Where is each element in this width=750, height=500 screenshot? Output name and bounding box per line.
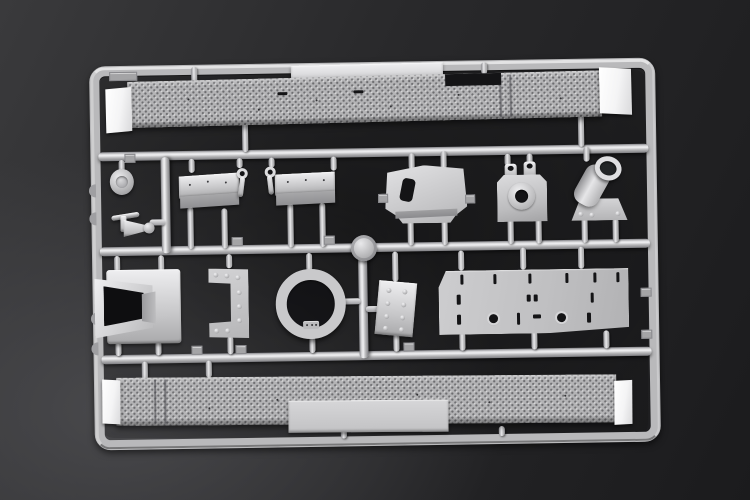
sprue-gate (155, 341, 161, 355)
gate-tab (324, 236, 335, 245)
plate-front-face (276, 191, 335, 206)
hole-dot (305, 179, 307, 181)
panel-slot (534, 294, 538, 301)
sprue-leg (221, 208, 228, 248)
hole-dot (564, 395, 566, 397)
coupling-knob (143, 222, 154, 233)
fitting-mark (277, 92, 287, 95)
sprue-gate (393, 334, 399, 352)
sprue-gate (578, 247, 584, 269)
panel-tick (460, 275, 463, 285)
panel-slot (517, 313, 520, 325)
shackle-hook-left (235, 168, 250, 200)
hole-dot (276, 399, 278, 401)
panel-seam (154, 380, 156, 424)
fitting-mark (353, 90, 363, 93)
top-strip-end-cap-left (105, 87, 132, 133)
hole-dot (287, 181, 289, 183)
bolt-head (615, 211, 620, 216)
post-bore (527, 164, 533, 169)
sprue-leg (187, 207, 194, 249)
rivet (224, 273, 229, 278)
plate-front-face (180, 193, 239, 209)
hole-dot (188, 98, 190, 100)
bottom-strip-end-cap-left (102, 380, 120, 425)
sprue-gate (227, 336, 233, 354)
top-fender-strip (105, 58, 628, 133)
panel-slot (587, 313, 591, 323)
bolt-head (578, 212, 583, 217)
gate-tab (403, 342, 414, 351)
model-kit-sprue-photo (0, 0, 750, 500)
hole-dot (207, 181, 209, 183)
post-bore (508, 166, 514, 171)
ring-lug (303, 321, 319, 329)
sprue-gate (309, 337, 315, 353)
gate-tab (124, 154, 135, 163)
bolt-plate (375, 280, 418, 337)
sprue-gate (330, 157, 336, 171)
frame-tab (641, 288, 652, 297)
top-strip-treadplate (127, 70, 602, 128)
sprue-gate (115, 342, 121, 356)
rivet (237, 318, 242, 323)
panel-slot (533, 314, 541, 318)
top-strip-notch (445, 73, 501, 86)
sprue-gate (612, 218, 618, 242)
riveted-bracket (208, 268, 249, 339)
hole-dot (390, 105, 392, 107)
lug-hole (315, 324, 317, 326)
bottom-strip-end-cap-right (614, 380, 632, 425)
hook-shank (267, 175, 274, 194)
bottom-strip-smooth-plate (288, 400, 448, 433)
shackle-hook-right (263, 167, 277, 197)
hole-dot (208, 407, 210, 409)
panel-slot (527, 295, 531, 302)
top-strip-end-cap-right (599, 67, 632, 114)
hole-dot (323, 179, 325, 181)
rivet (225, 328, 230, 333)
rivet (213, 272, 218, 277)
bolt-plate-face (375, 280, 418, 337)
hook-shank (238, 177, 245, 197)
sprue-gate (236, 158, 242, 168)
cradle-bore (515, 190, 528, 203)
sprue-gate (226, 254, 232, 268)
shield-side-tab (378, 194, 388, 203)
hole-dot (416, 394, 418, 396)
shield-side-tab (465, 194, 475, 203)
frame-scallop (89, 184, 96, 197)
support-plate-left (179, 172, 242, 209)
gate-tab (235, 345, 246, 354)
runner-vertical-left (160, 157, 171, 253)
shield-plate (385, 165, 468, 224)
panel-slot (457, 295, 461, 305)
bolt-head (589, 213, 594, 218)
panel-tick (493, 274, 496, 284)
cradle-block (497, 163, 548, 222)
gate-tab (232, 237, 243, 246)
sprue-gate (459, 333, 465, 351)
intake-hood (94, 269, 183, 344)
panel-hole (489, 314, 498, 323)
rivet (214, 328, 219, 333)
rivet (237, 290, 242, 295)
panel-seam (509, 75, 512, 117)
lug-hole (306, 324, 308, 326)
panel-seam (164, 380, 166, 424)
roof-panel (438, 268, 629, 335)
panel-hole (557, 313, 566, 322)
hole-dot (225, 181, 227, 183)
sprue-gate (520, 248, 526, 270)
panel-tick (616, 272, 619, 282)
frame-tab (641, 330, 652, 339)
sprue-gate (458, 251, 464, 271)
frame-scallop (89, 212, 96, 225)
barrel-mount (571, 158, 628, 221)
panel-tick (593, 273, 596, 283)
tow-coupling (111, 211, 155, 244)
hole-dot (258, 109, 260, 111)
bottom-fender-strip (102, 372, 632, 436)
panel-tick (528, 274, 531, 284)
hole-dot (488, 401, 490, 403)
rivet (235, 275, 240, 280)
panel-tick (565, 273, 568, 283)
panel-slot (457, 315, 461, 325)
coupling-cone (123, 220, 145, 237)
ring (275, 268, 346, 339)
hole-dot (316, 99, 318, 101)
hood-inner-wall (142, 291, 157, 323)
hole-dot (189, 184, 191, 186)
hole-dot (458, 94, 460, 96)
support-plate-right (275, 171, 338, 206)
lug-hole (311, 324, 313, 326)
sprue-gate (603, 330, 609, 348)
sprue-tree (89, 58, 661, 451)
rivet (237, 304, 242, 309)
hole-dot (560, 97, 562, 99)
hub-disc (110, 169, 134, 195)
sprue-gate (531, 331, 537, 349)
sprue-gate (188, 159, 194, 173)
sprue-gate (392, 252, 398, 282)
gate-tab (191, 346, 202, 355)
panel-slot (591, 293, 594, 303)
sprue-leg (287, 203, 294, 247)
